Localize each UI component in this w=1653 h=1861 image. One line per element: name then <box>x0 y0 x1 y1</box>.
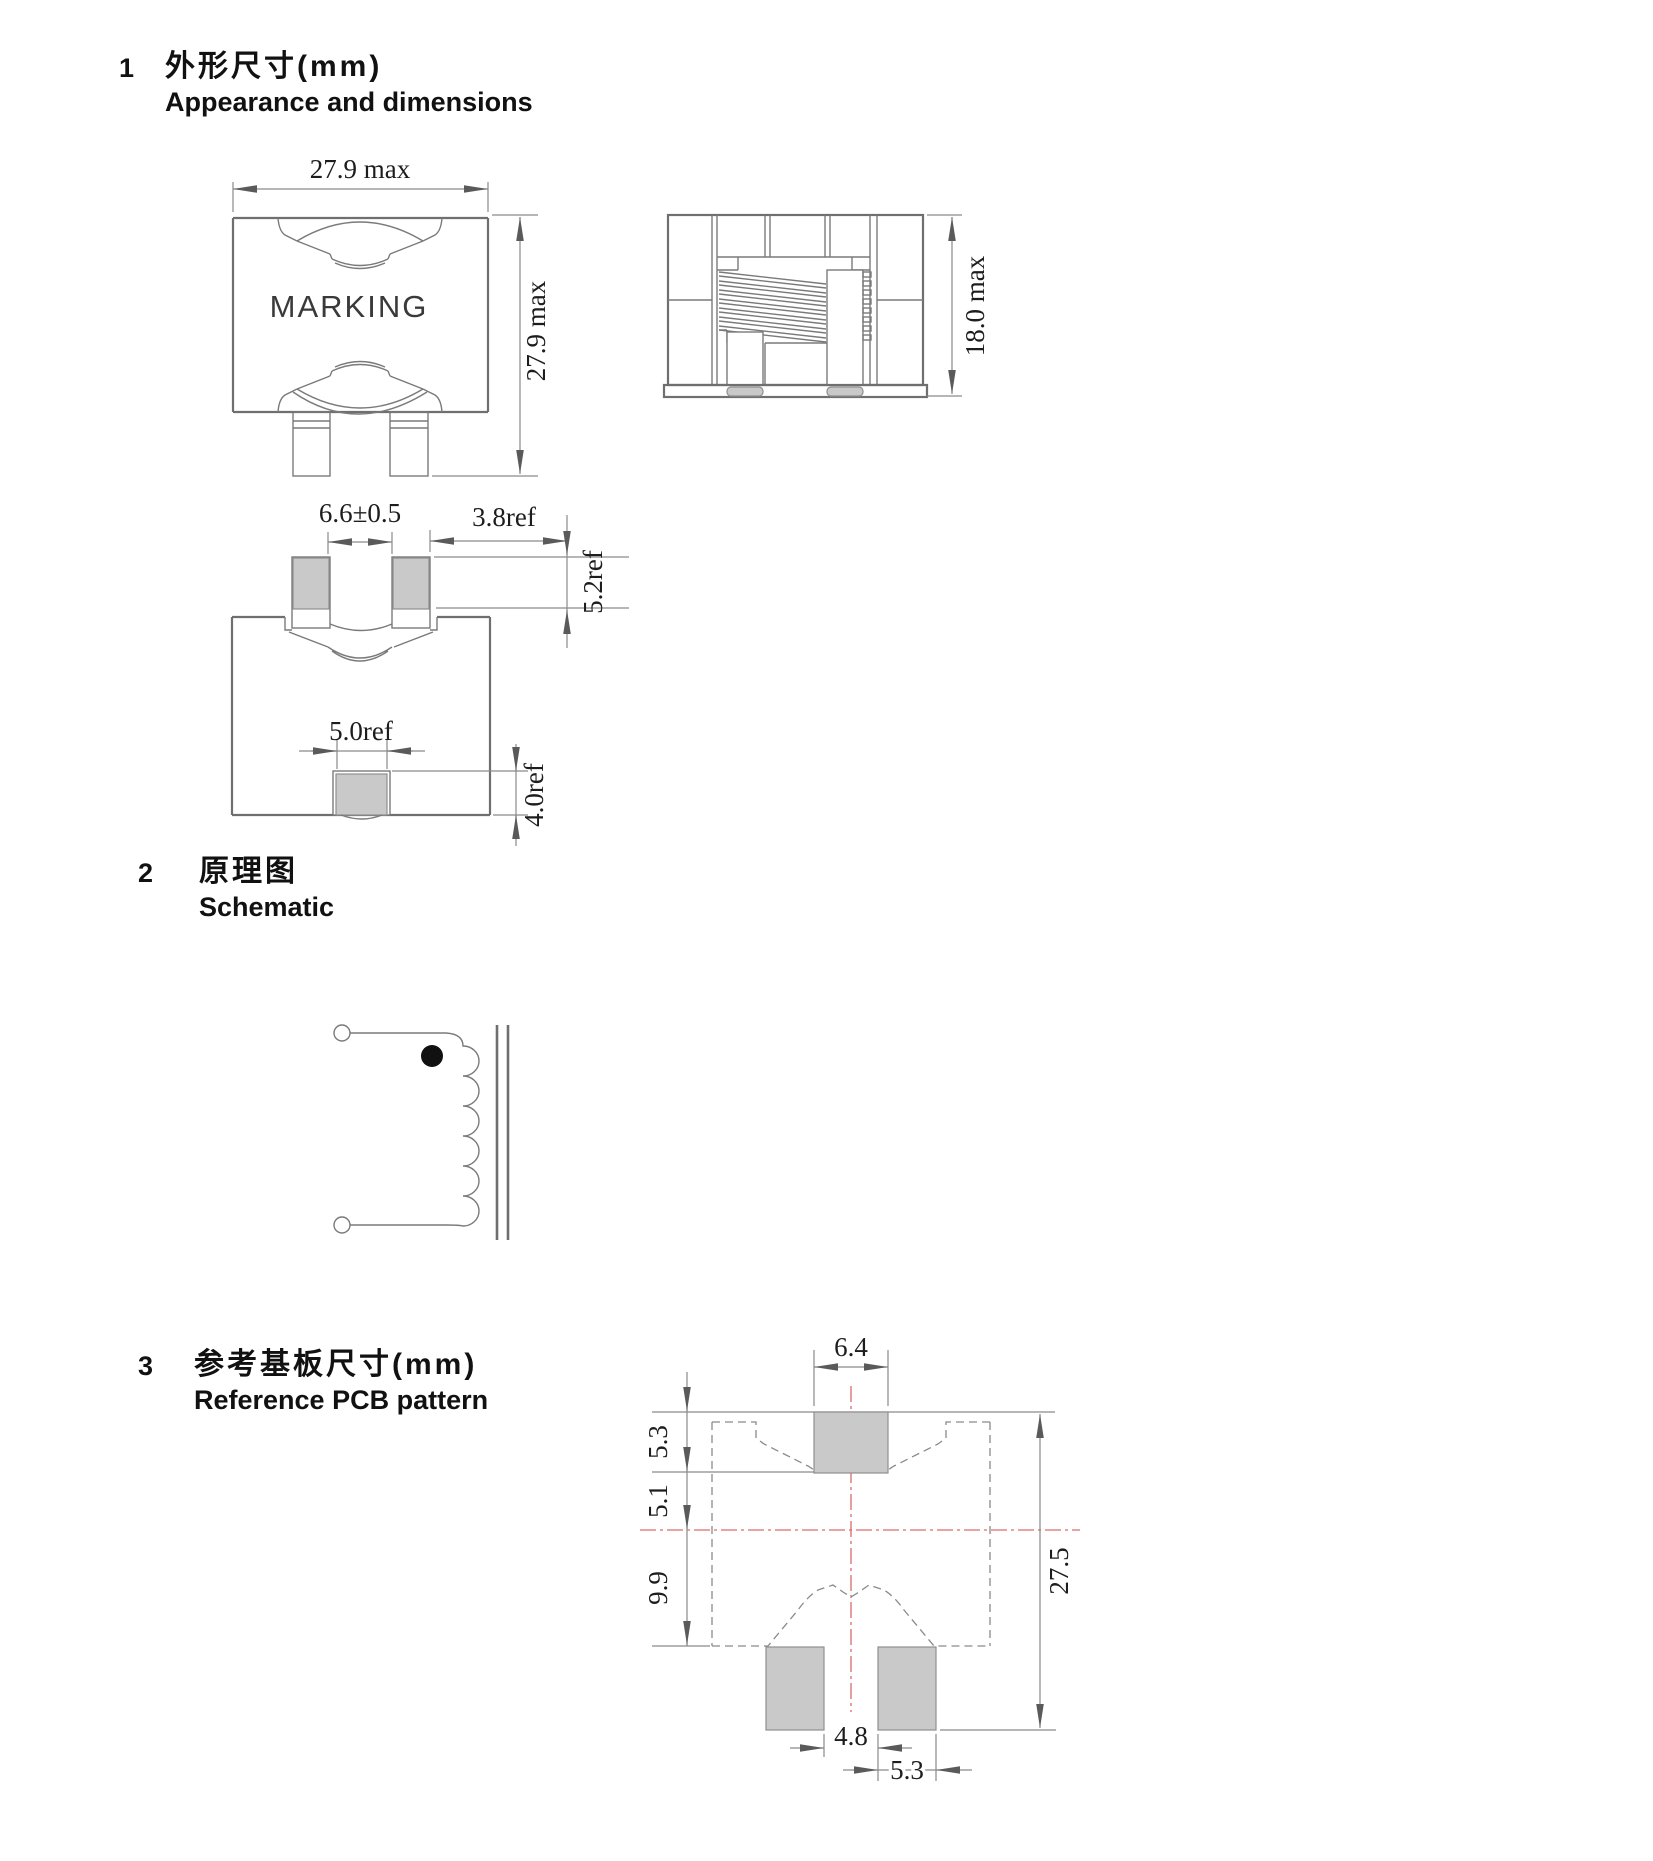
front-view-drawing: MARKING 27.9 max 27.9 max <box>233 154 551 476</box>
pad-span-dim-text: 6.6±0.5 <box>319 498 401 528</box>
side-base-plate <box>664 385 927 397</box>
front-view-body-outline <box>233 218 488 476</box>
side-pad-right <box>827 387 863 396</box>
side-bobbin-flange <box>827 270 863 385</box>
pcb-overall-height-dimension: 27.5 <box>940 1414 1074 1730</box>
pcb-top-pad-height-text: 5.3 <box>643 1425 673 1459</box>
bottom-view-body <box>232 557 490 819</box>
schematic-core-lines <box>497 1025 508 1240</box>
schematic-polarity-dot <box>421 1045 443 1067</box>
schematic-terminal-top <box>334 1025 350 1041</box>
pcb-top-pad-width-text: 6.4 <box>834 1332 868 1362</box>
front-height-dimension: 27.9 max <box>432 215 551 476</box>
pad-height-dim-text: 5.2ref <box>578 550 608 614</box>
pcb-center-to-bottom-text: 9.9 <box>643 1571 673 1605</box>
datasheet-page: 1 外形尺寸(mm) Appearance and dimensions 2 原… <box>0 0 1653 1861</box>
bottom-pin-left-pad <box>293 558 329 609</box>
bottom-pin-right-pad <box>393 558 429 609</box>
side-view-drawing: 18.0 max <box>664 215 990 397</box>
bottom-view-drawing: 6.6±0.5 3.8ref 5.2ref 5.0ref <box>232 498 629 846</box>
pcb-bottom-gap-text: 4.8 <box>834 1721 868 1751</box>
center-pad-width-dimension: 5.0ref <box>299 716 425 769</box>
center-pad-width-dim-text: 5.0ref <box>329 716 393 746</box>
schematic-terminal-bottom <box>334 1217 350 1233</box>
center-pad-height-dim-text: 4.0ref <box>519 763 549 827</box>
pad-side-dim-text: 3.8ref <box>472 502 536 532</box>
technical-drawings: MARKING 27.9 max 27.9 max <box>0 0 1653 1861</box>
pcb-bottom-pad-right <box>878 1647 936 1730</box>
schematic-drawing <box>334 1025 508 1240</box>
bottom-center-pad <box>336 774 387 815</box>
pcb-bottom-pad-left <box>766 1647 824 1730</box>
pad-height-dimension: 5.2ref <box>434 515 629 648</box>
pcb-left-dimension-chain: 5.3 5.1 9.9 <box>643 1372 710 1646</box>
side-height-dimension: 18.0 max <box>927 215 990 396</box>
pcb-bottom-pad-width-text: 5.3 <box>890 1755 924 1785</box>
marking-label: MARKING <box>270 289 429 324</box>
pcb-top-pad <box>814 1412 888 1473</box>
side-height-dim-text: 18.0 max <box>960 255 990 356</box>
pad-span-dimension: 6.6±0.5 <box>319 498 401 554</box>
front-height-dim-text: 27.9 max <box>521 280 551 381</box>
pcb-overall-height-text: 27.5 <box>1044 1547 1074 1594</box>
center-pad-height-dimension: 4.0ref <box>392 744 549 846</box>
pcb-pattern-drawing: 6.4 5.3 5.1 9.9 27.5 4.8 <box>640 1332 1080 1785</box>
front-width-dimension: 27.9 max <box>233 154 488 212</box>
side-left-pillar <box>727 332 763 385</box>
pcb-pad-to-center-text: 5.1 <box>643 1484 673 1518</box>
side-view-body <box>664 215 927 397</box>
side-pad-left <box>727 387 763 396</box>
pcb-bottom-pad-width-dimension: 5.3 <box>843 1755 972 1785</box>
front-width-dim-text: 27.9 max <box>310 154 411 184</box>
schematic-winding <box>350 1033 479 1226</box>
pad-side-dimension: 3.8ref <box>430 502 567 552</box>
